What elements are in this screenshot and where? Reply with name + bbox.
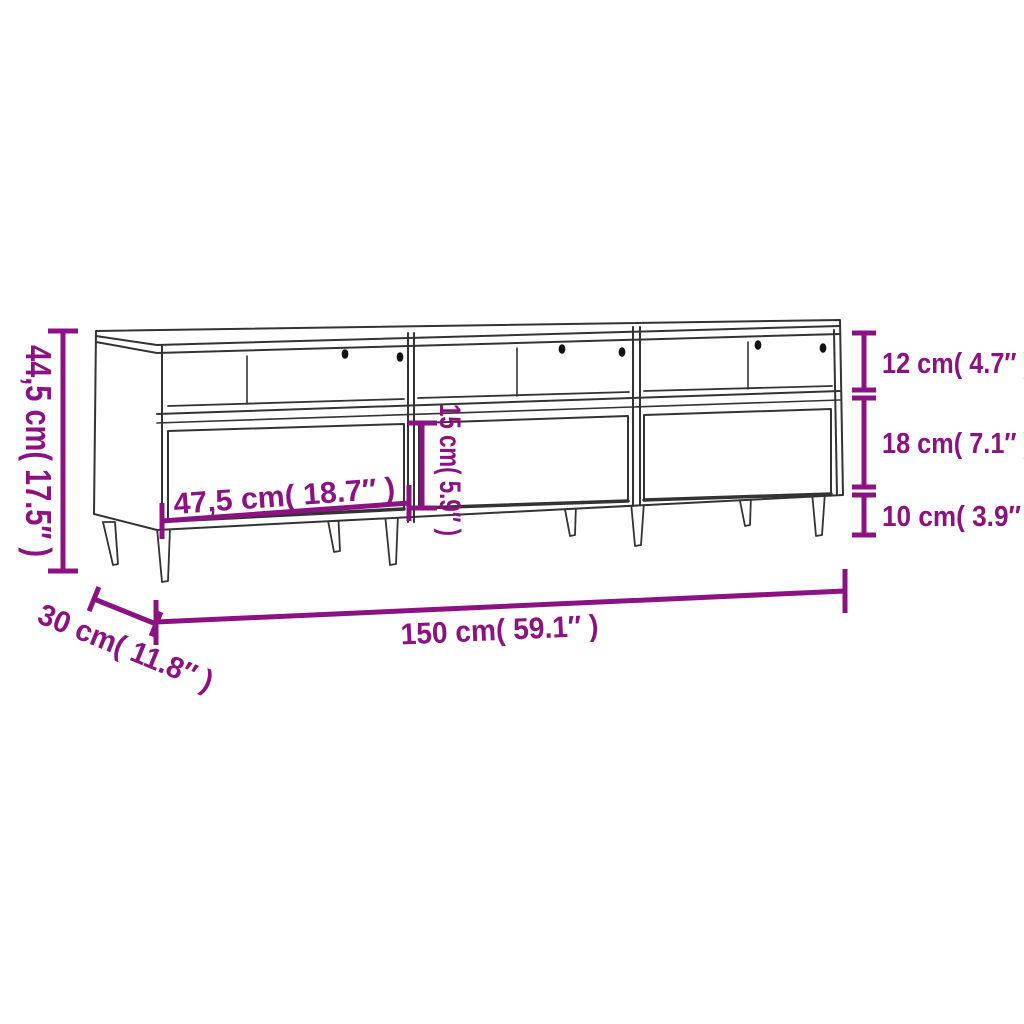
cabinet-leg xyxy=(812,492,825,536)
dimension-label: 15 cm( 5.9″ ) xyxy=(433,404,466,536)
dim-shelf-opening-height: 12 cm( 4.7″ ) xyxy=(852,333,1024,390)
cable-hole xyxy=(755,340,762,350)
dim-drawer-zone-height: 18 cm( 7.1″ ) xyxy=(852,398,1024,487)
cable-hole xyxy=(820,343,827,353)
cabinet-leg xyxy=(631,502,644,546)
dimension-label: 44,5 cm( 17.5″ ) xyxy=(18,345,59,557)
diagram-canvas: 44,5 cm( 17.5″ ) 12 cm( 4.7″ ) 18 cm( 7.… xyxy=(0,0,1024,1024)
dimension-line xyxy=(94,599,156,624)
dim-overall-depth: 30 cm( 11.8″ ) xyxy=(33,587,218,698)
dim-overall-height: 44,5 cm( 17.5″ ) xyxy=(18,331,78,571)
dim-leg-height: 10 cm( 3.9″ ) xyxy=(852,495,1024,535)
dim-overall-width: 150 cm( 59.1″ ) xyxy=(156,569,845,651)
dimension-label: 18 cm( 7.1″ ) xyxy=(882,428,1024,460)
dimension-label: 150 cm( 59.1″ ) xyxy=(400,610,599,652)
cabinet-leg xyxy=(103,522,118,565)
dimension-label: 12 cm( 4.7″ ) xyxy=(882,348,1024,380)
dimension-label: 10 cm( 3.9″ ) xyxy=(882,501,1024,533)
cable-hole xyxy=(397,352,404,362)
cable-hole xyxy=(342,349,349,359)
cable-hole xyxy=(559,344,566,354)
cabinet-leg xyxy=(385,514,398,565)
cable-hole xyxy=(619,347,626,357)
cabinet-drawing xyxy=(94,320,843,582)
